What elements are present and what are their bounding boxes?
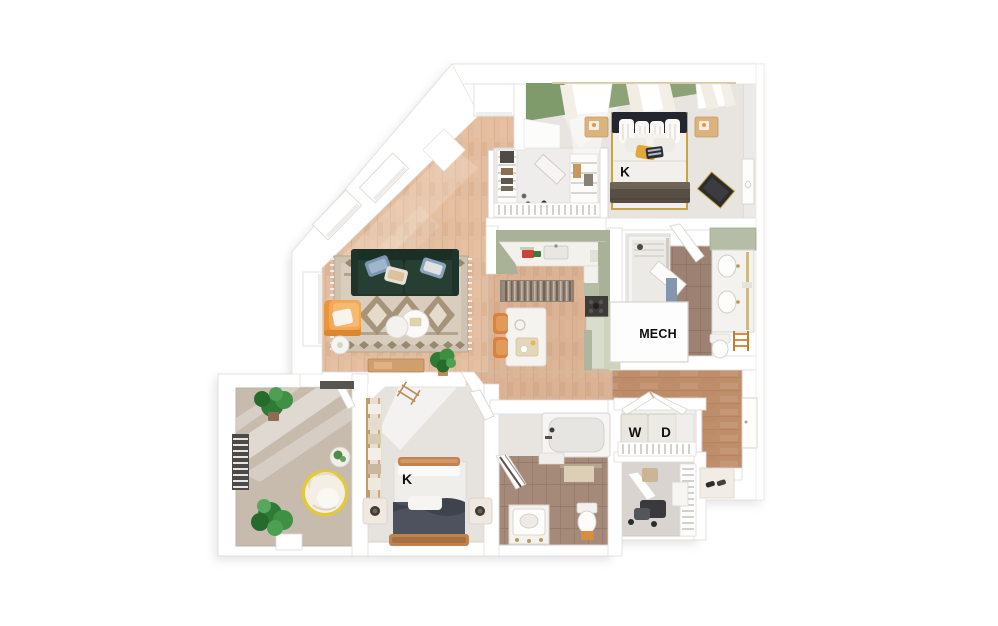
svg-text:K: K (402, 471, 412, 487)
svg-text:MECH: MECH (639, 327, 677, 341)
svg-text:W: W (629, 425, 642, 440)
svg-text:D: D (661, 425, 671, 440)
svg-text:K: K (620, 165, 630, 180)
